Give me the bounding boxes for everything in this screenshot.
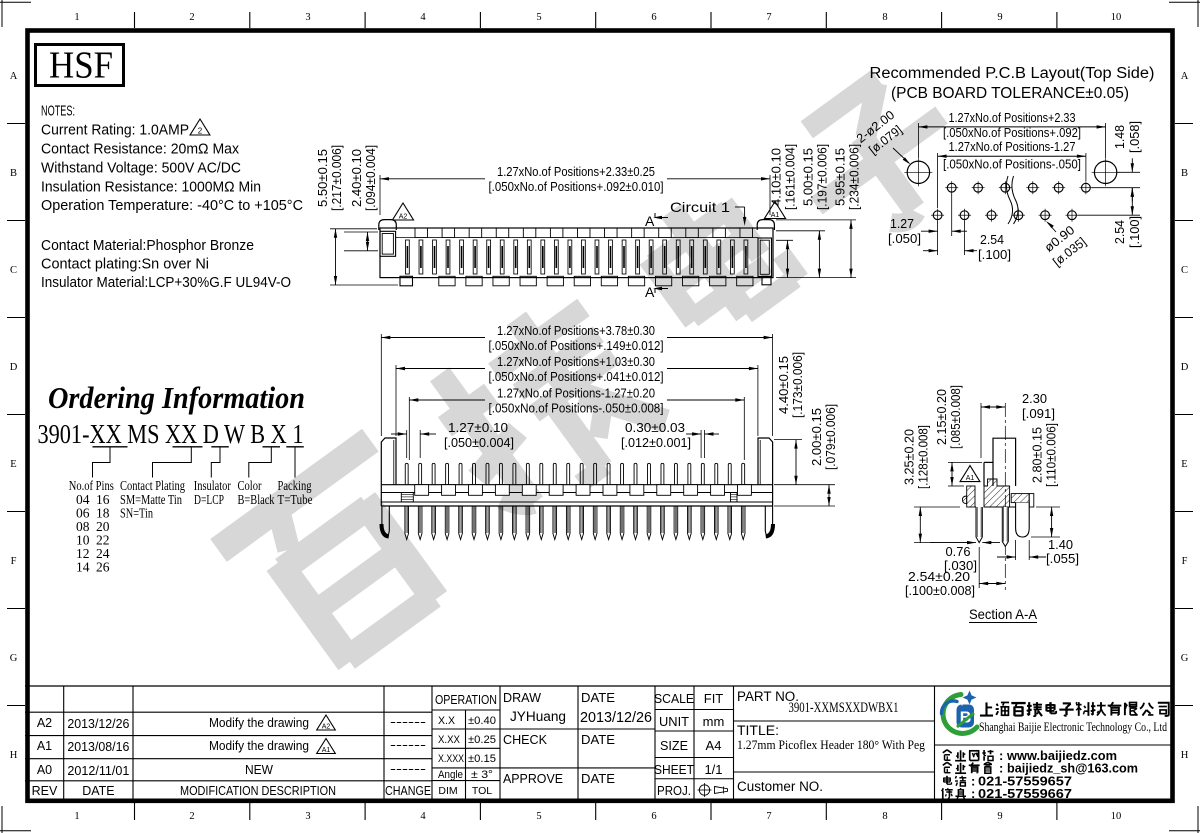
svg-text:0.30±0.03: 0.30±0.03 <box>625 420 685 435</box>
svg-text:[.094±0.004]: [.094±0.004] <box>364 145 378 211</box>
svg-text:NOTES:: NOTES: <box>41 103 75 120</box>
svg-text:T=Tube: T=Tube <box>278 492 313 507</box>
svg-text:7: 7 <box>766 811 771 822</box>
svg-text:3901-XXMSXXDWBX1: 3901-XXMSXXDWBX1 <box>789 700 899 716</box>
svg-text:[.100]: [.100] <box>978 248 1011 262</box>
svg-text:3: 3 <box>305 12 310 23</box>
svg-text:1.27xNo.of Positions+2.33: 1.27xNo.of Positions+2.33 <box>949 111 1076 125</box>
svg-text:Contact plating:Sn over Ni: Contact plating:Sn over Ni <box>41 256 209 273</box>
svg-text:SHEET: SHEET <box>654 762 694 777</box>
svg-text:2012/11/01: 2012/11/01 <box>67 763 129 778</box>
svg-text:A2: A2 <box>322 724 331 731</box>
svg-text:Packing: Packing <box>278 478 312 493</box>
svg-text:[.085±0.008]: [.085±0.008] <box>949 385 963 449</box>
svg-text:G: G <box>10 653 18 664</box>
svg-text:2: 2 <box>198 127 203 136</box>
svg-text:[.050xNo.of Positions+.041±0.0: [.050xNo.of Positions+.041±0.012] <box>489 369 664 384</box>
svg-text:[.079±0.006]: [.079±0.006] <box>824 404 838 470</box>
svg-text:Contact Material:Phosphor Bron: Contact Material:Phosphor Bronze <box>41 237 254 254</box>
svg-text:9: 9 <box>997 811 1002 822</box>
svg-text:------: ------ <box>390 738 426 752</box>
svg-text:1.27xNo.of Positions-1.27±0.20: 1.27xNo.of Positions-1.27±0.20 <box>497 386 655 401</box>
svg-text:HSF: HSF <box>49 45 113 87</box>
svg-text:A: A <box>1181 71 1189 82</box>
svg-text:Modify the drawing: Modify the drawing <box>209 716 309 730</box>
svg-text:10: 10 <box>1111 12 1122 23</box>
svg-text:C: C <box>10 265 17 276</box>
svg-text:SCALE: SCALE <box>654 691 694 706</box>
svg-text:5: 5 <box>536 12 541 23</box>
svg-text:8: 8 <box>882 12 887 23</box>
svg-text:[.128±0.008]: [.128±0.008] <box>917 425 931 489</box>
svg-text:SIZE: SIZE <box>660 738 688 753</box>
svg-text:(PCB BOARD TOLERANCE±0.05): (PCB BOARD TOLERANCE±0.05) <box>891 85 1129 102</box>
svg-text:3: 3 <box>305 811 310 822</box>
svg-text:5.00±0.15: 5.00±0.15 <box>802 148 816 206</box>
svg-text:1.27xNo.of Positions+1.03±0.30: 1.27xNo.of Positions+1.03±0.30 <box>497 354 655 369</box>
svg-text:4.40±0.15: 4.40±0.15 <box>777 356 791 414</box>
svg-text:6: 6 <box>651 12 656 23</box>
svg-text:0.76: 0.76 <box>946 545 971 559</box>
svg-text:MODIFICATION DESCRIPTION: MODIFICATION DESCRIPTION <box>180 784 336 798</box>
svg-text:A1: A1 <box>966 475 975 482</box>
svg-text:REV: REV <box>32 784 58 798</box>
svg-text:A1: A1 <box>322 747 331 754</box>
svg-text:Shanghai Baijie Electronic Tec: Shanghai Baijie Electronic Technology Co… <box>979 720 1168 734</box>
svg-text:14: 14 <box>76 560 90 575</box>
svg-text:Color: Color <box>238 478 262 493</box>
svg-text:1: 1 <box>74 811 79 822</box>
svg-text:DATE: DATE <box>581 732 615 747</box>
svg-text:Recommended P.C.B Layout(Top S: Recommended P.C.B Layout(Top Side) <box>870 65 1155 82</box>
svg-text:1.27xNo.of Positions+3.78±0.30: 1.27xNo.of Positions+3.78±0.30 <box>497 323 655 338</box>
svg-text:X.X: X.X <box>438 715 456 727</box>
svg-text:A: A <box>645 213 655 229</box>
svg-text:A1: A1 <box>37 739 52 753</box>
svg-text:4.10±0.10: 4.10±0.10 <box>770 148 784 206</box>
svg-text::: : <box>971 786 975 801</box>
svg-text:4: 4 <box>420 12 426 23</box>
svg-text:A4: A4 <box>706 738 722 753</box>
svg-text:1.27: 1.27 <box>890 217 914 231</box>
svg-text:Current Rating: 1.0AMP: Current Rating: 1.0AMP <box>41 122 189 139</box>
svg-text:DIM: DIM <box>438 785 457 797</box>
svg-text:± 3°: ± 3° <box>471 769 493 781</box>
svg-text:2: 2 <box>189 12 194 23</box>
svg-text:Insulator Material:LCP+30%G.F: Insulator Material:LCP+30%G.F UL94V-O <box>41 274 291 291</box>
svg-text:A2: A2 <box>37 716 52 730</box>
svg-text:B: B <box>10 168 17 179</box>
svg-text:2.54: 2.54 <box>980 233 1004 247</box>
svg-text:1.27xNo.of Positions-1.27: 1.27xNo.of Positions-1.27 <box>949 140 1076 154</box>
svg-text:OPERATION: OPERATION <box>435 693 497 707</box>
svg-text:A0: A0 <box>37 763 52 777</box>
svg-text:[.100]: [.100] <box>1128 216 1142 248</box>
svg-text:±0.25: ±0.25 <box>468 734 496 746</box>
svg-text:PROJ.: PROJ. <box>657 783 691 798</box>
svg-text:F: F <box>1182 556 1188 567</box>
svg-text:2013/08/16: 2013/08/16 <box>67 739 129 754</box>
svg-text:Circuit 1: Circuit 1 <box>670 199 730 215</box>
svg-text:2013/12/26: 2013/12/26 <box>67 716 129 731</box>
svg-text:2.54±0.20: 2.54±0.20 <box>908 570 970 584</box>
svg-text:1.27xNo.of Positions+2.33±0.25: 1.27xNo.of Positions+2.33±0.25 <box>497 164 655 179</box>
svg-text:[.050±0.004]: [.050±0.004] <box>444 435 514 450</box>
svg-text:2.15±0.20: 2.15±0.20 <box>935 389 949 445</box>
svg-text:[.091]: [.091] <box>1022 407 1055 421</box>
svg-text:APPROVE: APPROVE <box>503 771 563 786</box>
svg-text:E: E <box>1181 459 1187 470</box>
svg-text:2: 2 <box>189 811 194 822</box>
svg-text:4: 4 <box>420 811 426 822</box>
svg-text:5.95±0.15: 5.95±0.15 <box>834 148 848 206</box>
svg-text:1.27±0.10: 1.27±0.10 <box>448 420 508 435</box>
svg-text:D: D <box>1181 362 1189 373</box>
svg-text:C: C <box>1181 265 1188 276</box>
svg-text:10: 10 <box>1111 811 1122 822</box>
svg-text:Insulation Resistance: 1000MΩ: Insulation Resistance: 1000MΩ Min <box>41 179 261 196</box>
svg-text:G: G <box>1181 653 1189 664</box>
svg-text:D=LCP: D=LCP <box>194 492 224 507</box>
svg-text:H: H <box>1181 750 1189 761</box>
svg-text:3.25±0.20: 3.25±0.20 <box>903 429 917 485</box>
svg-text:Ordering Information: Ordering Information <box>48 380 305 415</box>
svg-text:------: ------ <box>390 762 426 776</box>
svg-text:Section A-A: Section A-A <box>969 606 1038 622</box>
svg-text:H: H <box>10 750 18 761</box>
svg-text:SN=Tin: SN=Tin <box>120 506 153 521</box>
svg-text:Contact Resistance: 20mΩ Max: Contact Resistance: 20mΩ Max <box>41 141 239 158</box>
svg-text:TOL: TOL <box>472 785 492 797</box>
svg-text:[.050]: [.050] <box>888 232 921 246</box>
svg-text:E: E <box>10 459 16 470</box>
svg-text:Customer NO.: Customer NO. <box>737 779 823 794</box>
svg-text:26: 26 <box>96 560 110 575</box>
svg-text:No.of Pins: No.of Pins <box>69 478 114 493</box>
svg-text:2.00±0.15: 2.00±0.15 <box>810 408 824 466</box>
svg-text:DATE: DATE <box>581 771 615 786</box>
svg-text:DATE: DATE <box>82 784 114 798</box>
svg-text:Angle: Angle <box>438 769 463 781</box>
svg-text:8: 8 <box>882 811 887 822</box>
svg-text:5.50±0.15: 5.50±0.15 <box>316 149 330 207</box>
svg-text:[.050xNo.of Positions-.050]: [.050xNo.of Positions-.050] <box>943 158 1081 172</box>
svg-text:2013/12/26: 2013/12/26 <box>580 710 652 726</box>
svg-text:Modify the drawing: Modify the drawing <box>209 739 309 753</box>
svg-text:D: D <box>10 362 18 373</box>
svg-text:1/1: 1/1 <box>704 762 722 777</box>
svg-text:[.197±0.006]: [.197±0.006] <box>816 144 830 210</box>
svg-text:CHANGE: CHANGE <box>385 784 431 798</box>
svg-text:[.050xNo.of Positions+.092]: [.050xNo.of Positions+.092] <box>943 126 1081 140</box>
svg-text:1: 1 <box>74 12 79 23</box>
svg-text:[.234±0.006]: [.234±0.006] <box>848 144 862 210</box>
svg-text:TITLE:: TITLE: <box>737 723 779 738</box>
svg-text:2.40±0.10: 2.40±0.10 <box>350 149 364 207</box>
svg-text:±0.40: ±0.40 <box>468 715 496 727</box>
svg-text:DATE: DATE <box>581 690 615 705</box>
svg-text:1.48: 1.48 <box>1113 125 1127 149</box>
svg-text:FIT: FIT <box>704 691 724 706</box>
svg-text:B=Black: B=Black <box>238 492 275 507</box>
svg-text:2.30: 2.30 <box>1022 392 1047 406</box>
svg-text:NEW: NEW <box>245 763 273 777</box>
svg-text:[.050xNo.of Positions-.050±0.0: [.050xNo.of Positions-.050±0.008] <box>489 401 664 416</box>
svg-text:2.80±0.15: 2.80±0.15 <box>1031 427 1045 483</box>
svg-text:A2: A2 <box>399 214 408 221</box>
svg-text:[.217±0.006]: [.217±0.006] <box>330 145 344 211</box>
svg-text:Operation Temperature: -40°C t: Operation Temperature: -40°C to +105°C <box>41 197 303 214</box>
svg-text:9: 9 <box>997 12 1002 23</box>
svg-text:[.012±0.001]: [.012±0.001] <box>621 435 691 450</box>
svg-text:Insulator: Insulator <box>194 478 231 493</box>
svg-text:B: B <box>1181 168 1188 179</box>
svg-text:3901-XX MS XX D W B X 1: 3901-XX MS XX D W B X 1 <box>38 419 304 449</box>
svg-text:[.050xNo.of Positions+.149±0.0: [.050xNo.of Positions+.149±0.012] <box>489 338 664 353</box>
svg-text:Contact Plating: Contact Plating <box>120 478 185 493</box>
svg-text:7: 7 <box>766 12 771 23</box>
svg-text:5: 5 <box>536 811 541 822</box>
svg-text:JYHuang: JYHuang <box>510 709 566 724</box>
svg-text:2.54: 2.54 <box>1113 220 1127 244</box>
svg-text:A: A <box>645 284 655 300</box>
svg-text:[.100±0.008]: [.100±0.008] <box>905 584 975 598</box>
svg-text:------: ------ <box>390 715 426 729</box>
svg-text:021-57559667: 021-57559667 <box>978 786 1072 801</box>
svg-text:DRAW: DRAW <box>503 690 542 705</box>
svg-text:[.173±0.006]: [.173±0.006] <box>791 352 805 418</box>
svg-text:UNIT: UNIT <box>659 714 689 729</box>
svg-text:[.058]: [.058] <box>1128 121 1142 153</box>
svg-text:1.40: 1.40 <box>1048 538 1073 552</box>
svg-text:6: 6 <box>651 811 656 822</box>
svg-text:F: F <box>11 556 17 567</box>
svg-text:X.XXX: X.XXX <box>438 753 465 765</box>
svg-text:[.055]: [.055] <box>1046 552 1079 566</box>
svg-text:mm: mm <box>703 714 725 729</box>
svg-text:CHECK: CHECK <box>503 732 547 747</box>
svg-text:A: A <box>10 71 18 82</box>
svg-text:Withstand Voltage: 500V AC/DC: Withstand Voltage: 500V AC/DC <box>41 160 241 177</box>
svg-text:[.161±0.004]: [.161±0.004] <box>784 144 798 210</box>
svg-text:±0.15: ±0.15 <box>468 753 496 765</box>
svg-text:A1: A1 <box>771 212 780 219</box>
svg-text:[.110±0.006]: [.110±0.006] <box>1045 423 1059 487</box>
svg-text:[.050xNo.of Positions+.092±0.0: [.050xNo.of Positions+.092±0.010] <box>489 179 664 194</box>
svg-text:X.XX: X.XX <box>438 734 461 746</box>
svg-text:1.27mm Picoflex Header 180° Wi: 1.27mm Picoflex Header 180° With Peg <box>737 738 926 752</box>
